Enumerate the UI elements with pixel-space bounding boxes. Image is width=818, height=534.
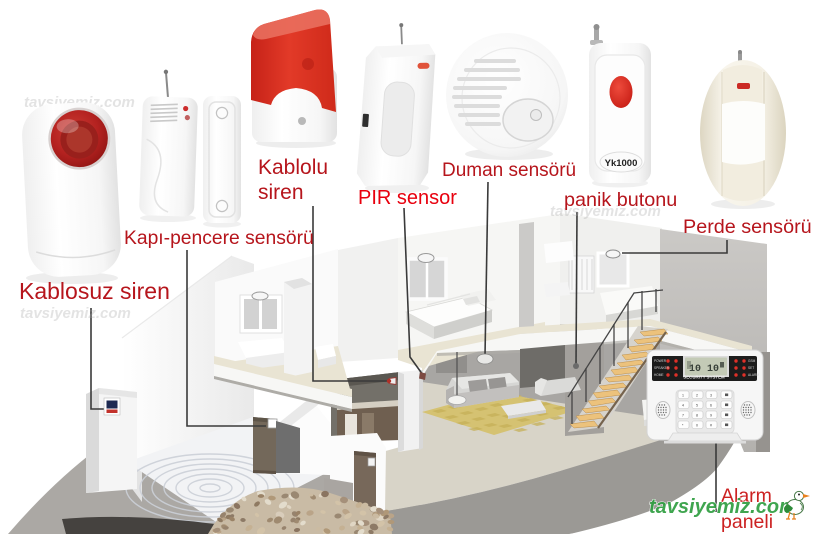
svg-text:Kablosuz siren: Kablosuz siren (19, 278, 170, 304)
svg-text:Duman sensörü: Duman sensörü (442, 160, 576, 181)
svg-text:4: 4 (682, 404, 684, 408)
svg-text:Kablolu: Kablolu (258, 156, 328, 179)
svg-text:POWER: POWER (654, 359, 667, 363)
svg-text:Kapı-pencere sensörü: Kapı-pencere sensörü (124, 228, 314, 249)
svg-text:HOME: HOME (654, 373, 664, 377)
svg-text:2: 2 (696, 394, 698, 398)
svg-text:tavsiyemiz.com: tavsiyemiz.com (649, 496, 797, 518)
svg-text:10 10: 10 10 (689, 364, 719, 375)
svg-text:GSM: GSM (748, 359, 756, 363)
svg-text:0: 0 (696, 424, 698, 428)
svg-text:SECURITY SYSTEM: SECURITY SYSTEM (683, 375, 725, 380)
svg-text:8: 8 (696, 414, 698, 418)
svg-text:PIR sensor: PIR sensor (358, 187, 457, 209)
svg-text:Perde sensörü: Perde sensörü (683, 216, 812, 238)
svg-text:5: 5 (696, 404, 698, 408)
svg-text:tavsiyemiz.com: tavsiyemiz.com (20, 305, 131, 322)
svg-text:1: 1 (682, 394, 684, 398)
svg-text:SPEAKER: SPEAKER (654, 366, 670, 370)
svg-text:3: 3 (710, 394, 712, 398)
svg-text:#: # (710, 424, 712, 428)
svg-text:SET: SET (748, 366, 754, 370)
svg-text:9: 9 (710, 414, 712, 418)
svg-text:Yk1000: Yk1000 (605, 158, 638, 169)
svg-text:panik butonu: panik butonu (564, 189, 677, 211)
svg-text:siren: siren (258, 181, 304, 204)
svg-text:7: 7 (682, 414, 684, 418)
svg-text:6: 6 (710, 404, 712, 408)
svg-text:ALARM: ALARM (748, 373, 759, 377)
